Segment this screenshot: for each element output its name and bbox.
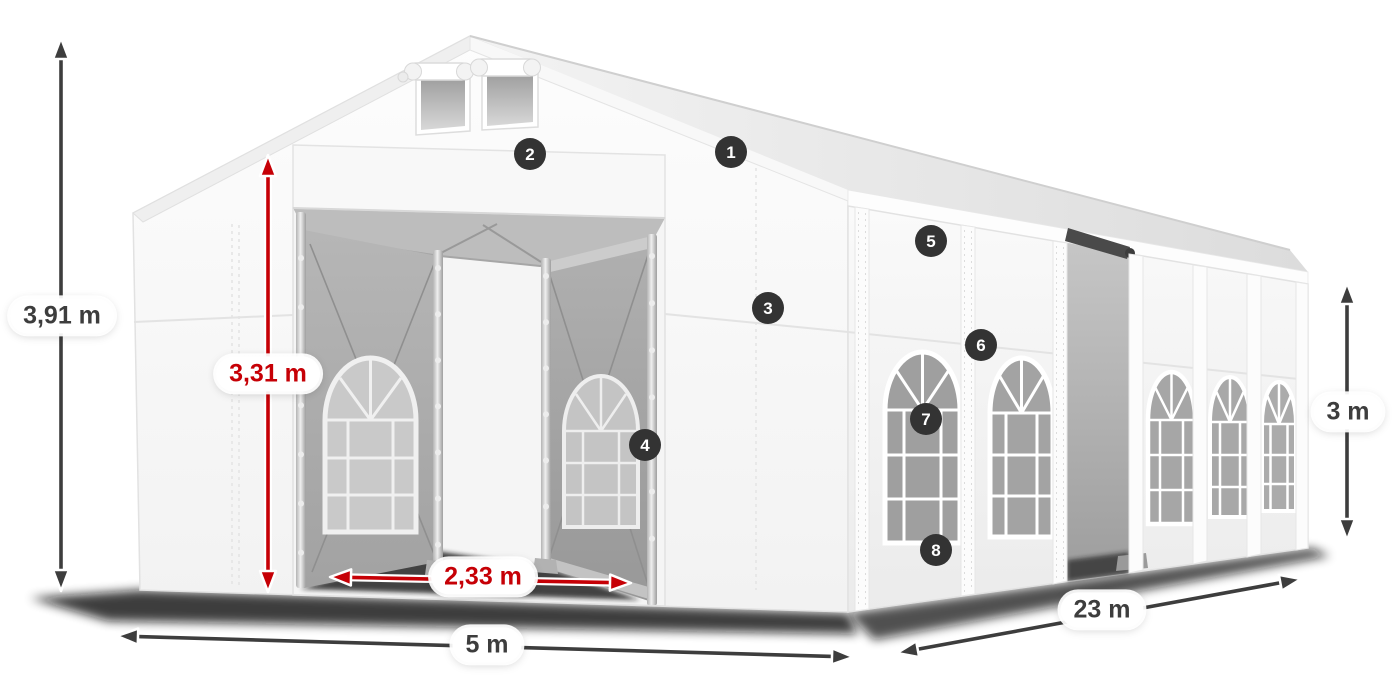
interior-window-left bbox=[325, 358, 416, 532]
tent-illustration bbox=[0, 0, 1400, 700]
side-window-4 bbox=[1210, 377, 1250, 517]
dimension-label-entrance-height: 3,31 m bbox=[216, 356, 320, 391]
side-window-3 bbox=[1148, 372, 1195, 524]
part-badge-5: 5 bbox=[915, 225, 947, 257]
entrance-interior bbox=[293, 208, 665, 606]
side-window-2 bbox=[990, 358, 1053, 537]
part-badge-6: 6 bbox=[965, 329, 997, 361]
tent-dimension-diagram: 3,91 m3,31 m2,33 m5 m23 m3 m 12345678 bbox=[0, 0, 1400, 700]
right-door-panel bbox=[546, 236, 652, 602]
side-window-1 bbox=[885, 352, 960, 543]
left-door-panel bbox=[304, 230, 437, 588]
part-badge-3: 3 bbox=[752, 292, 784, 324]
part-badge-7: 7 bbox=[910, 403, 942, 435]
part-badge-8: 8 bbox=[920, 534, 952, 566]
part-badge-2: 2 bbox=[514, 138, 546, 170]
entrance-header-beam bbox=[293, 145, 665, 218]
dimension-label-door-width: 2,33 m bbox=[431, 559, 535, 594]
part-badge-4: 4 bbox=[629, 429, 661, 461]
interior-window-right bbox=[564, 376, 638, 527]
dimension-label-side-length: 23 m bbox=[1061, 592, 1144, 627]
dimension-label-total-height: 3,91 m bbox=[10, 298, 114, 333]
side-window-5 bbox=[1262, 382, 1296, 511]
dimension-label-side-height: 3 m bbox=[1313, 394, 1382, 429]
dimension-label-front-width: 5 m bbox=[452, 627, 521, 662]
part-badge-1: 1 bbox=[715, 136, 747, 168]
